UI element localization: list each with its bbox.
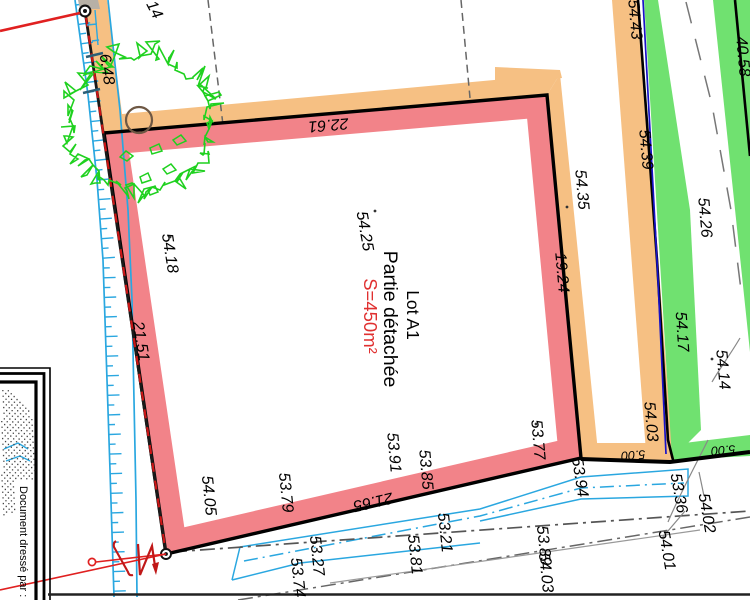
svg-text:54.35: 54.35 (571, 169, 591, 210)
svg-text:53.85: 53.85 (415, 449, 435, 490)
svg-text:54.17: 54.17 (672, 311, 692, 353)
svg-text:Document dressé par :: Document dressé par : (17, 486, 29, 597)
svg-text:54.03: 54.03 (640, 401, 660, 442)
svg-text:54.14: 54.14 (712, 349, 732, 390)
svg-text:53.91: 53.91 (383, 432, 403, 473)
svg-text:Lot A1: Lot A1 (403, 290, 423, 340)
svg-text:5.00: 5.00 (621, 447, 646, 463)
svg-text:5.00: 5.00 (711, 442, 736, 458)
svg-text:22.61: 22.61 (308, 114, 350, 135)
svg-text:S=450m²: S=450m² (360, 278, 381, 354)
svg-text:54.26: 54.26 (694, 197, 714, 238)
svg-text:54.43: 54.43 (624, 0, 644, 40)
svg-text:19.24: 19.24 (551, 252, 571, 293)
svg-text:53.77: 53.77 (527, 419, 548, 461)
svg-text:Partie détachée: Partie détachée (379, 251, 401, 388)
svg-text:54.39: 54.39 (635, 129, 655, 170)
